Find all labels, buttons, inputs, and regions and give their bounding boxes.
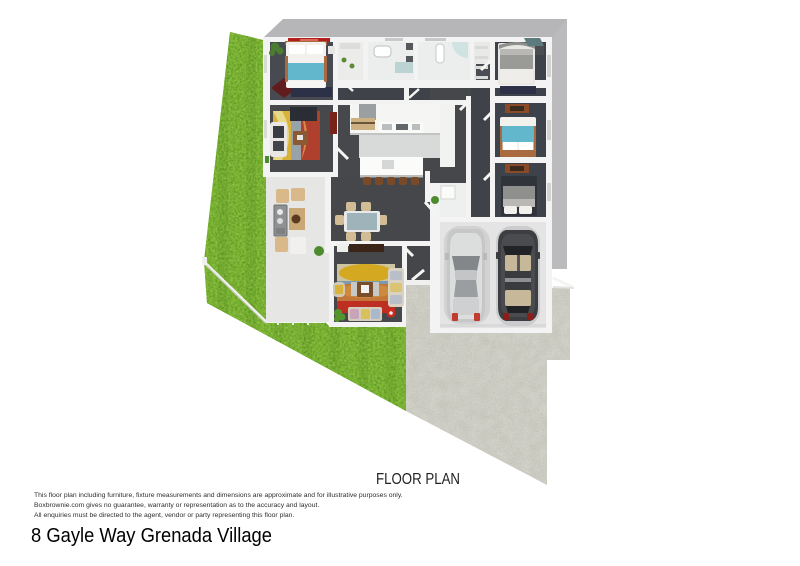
- svg-text:Boxbrownie.com gives no guaran: Boxbrownie.com gives no guarantee, warra…: [34, 502, 319, 509]
- svg-text:FLOOR PLAN: FLOOR PLAN: [376, 471, 460, 488]
- svg-text:8 Gayle Way Grenada Village: 8 Gayle Way Grenada Village: [31, 524, 272, 547]
- svg-text:This floor plan including furn: This floor plan including furniture, fix…: [34, 492, 403, 499]
- svg-text:All enquiries must be directed: All enquiries must be directed to the ag…: [34, 512, 294, 519]
